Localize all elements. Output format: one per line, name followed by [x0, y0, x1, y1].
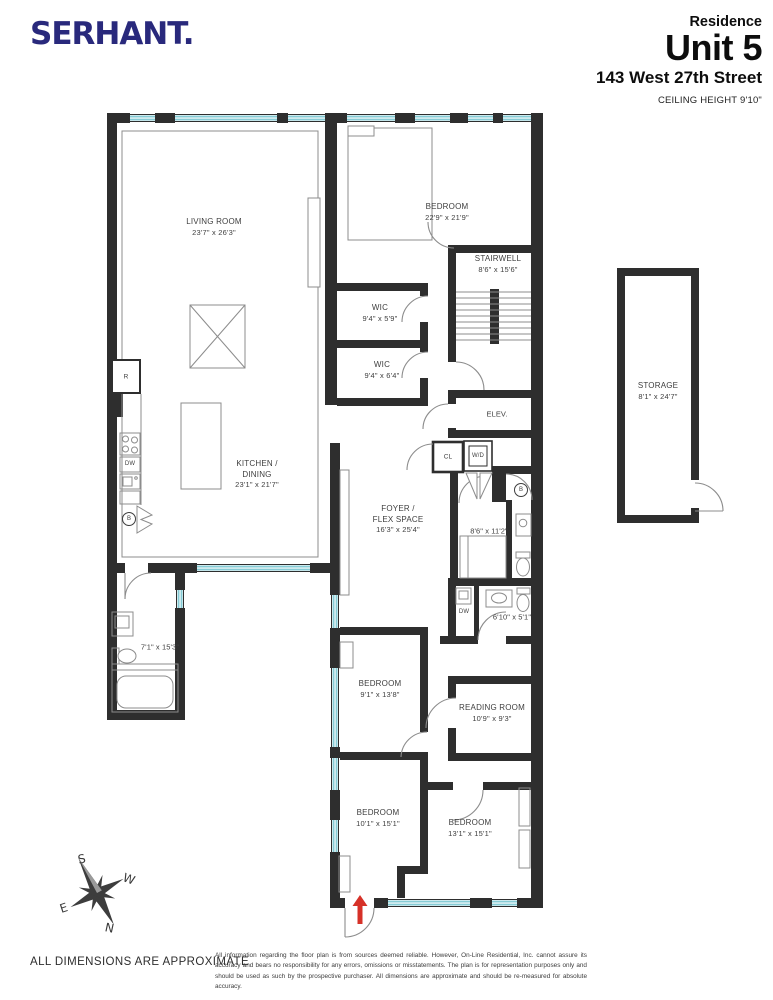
window-frame — [347, 121, 395, 122]
wall — [107, 563, 125, 573]
room-label-bedroom-bottom-right: BEDROOM 13'1" x 15'1" — [448, 818, 492, 838]
compass-icon — [52, 844, 141, 939]
wall — [448, 245, 456, 362]
window-frame — [288, 121, 325, 122]
window-glass — [197, 569, 310, 571]
window-glass — [415, 116, 450, 118]
burner-icon — [135, 477, 138, 480]
fixture-outline — [519, 830, 530, 868]
wall — [691, 268, 699, 480]
window-glass — [492, 904, 517, 906]
wall — [617, 268, 625, 523]
fixture-outline — [460, 536, 506, 578]
burner-icon — [123, 436, 129, 442]
wall — [450, 578, 543, 586]
wall — [448, 676, 456, 698]
wall — [450, 113, 468, 123]
window-glass — [181, 590, 183, 608]
window-glass — [178, 590, 180, 608]
wall — [325, 113, 337, 405]
window-glass — [503, 119, 531, 121]
office-dims-label: 8'6" x 11'2" — [470, 527, 508, 536]
room-label-wic-lower: WIC 9'4" x 6'4" — [365, 360, 400, 380]
window-glass — [347, 116, 395, 118]
fixture-outline — [181, 403, 221, 489]
window-frame — [197, 571, 310, 572]
window-frame — [175, 114, 277, 115]
room-label-elevator: ELEV. — [486, 410, 507, 419]
window-glass — [468, 119, 493, 121]
bath-small-dims-label: 6'10" x 5'1" — [493, 613, 531, 622]
window-glass — [336, 668, 338, 747]
closet-door-zigzag — [137, 506, 152, 533]
window-glass — [130, 119, 155, 121]
washer-dryer-label: W/D — [472, 453, 484, 459]
wall — [448, 753, 543, 761]
window-glass — [288, 119, 325, 121]
window-frame — [468, 121, 493, 122]
wall — [420, 378, 428, 406]
wall — [448, 430, 543, 438]
wall — [517, 898, 543, 908]
window-frame — [503, 121, 531, 122]
wall — [175, 573, 185, 590]
burner-icon — [123, 446, 129, 452]
door-swing — [426, 698, 456, 728]
door-swing — [402, 352, 428, 378]
window-glass — [288, 116, 325, 118]
window-frame — [130, 121, 155, 122]
floorplan-drawing — [0, 0, 773, 1000]
wall — [337, 283, 428, 291]
bath-circle-ensuite-label: B — [519, 487, 523, 493]
window-glass — [347, 119, 395, 121]
window-frame — [183, 590, 184, 608]
wall — [450, 473, 458, 586]
disclaimer-text: All information regarding the floor plan… — [215, 951, 587, 993]
dishwasher-label: DW — [125, 461, 135, 467]
door-swing — [456, 362, 484, 390]
floorplan-page: SERHANT. Residence Unit 5 143 West 27th … — [0, 0, 773, 1000]
fixture-outline — [340, 642, 353, 668]
fridge-label: R — [124, 374, 129, 381]
window-glass — [175, 116, 277, 118]
burner-icon — [519, 519, 527, 527]
wall — [448, 578, 456, 644]
fixture-outline — [120, 491, 140, 504]
entry-arrow-icon — [353, 895, 368, 924]
window-glass — [333, 595, 335, 628]
room-label-foyer: FOYER / FLEX SPACE 16'3" x 25'4" — [373, 504, 424, 535]
fixture-outline — [456, 588, 471, 604]
wall — [448, 245, 543, 253]
wall — [448, 728, 456, 753]
window-frame — [331, 758, 332, 790]
fixture-outline — [123, 477, 132, 486]
fixture-outline — [115, 616, 129, 628]
window-glass — [415, 119, 450, 121]
burner-icon — [132, 447, 138, 453]
wall — [336, 752, 428, 760]
wall — [506, 466, 531, 474]
window-frame — [331, 668, 332, 747]
window-glass — [388, 901, 470, 903]
wall — [175, 608, 185, 710]
window-glass — [468, 116, 493, 118]
window-glass — [333, 758, 335, 790]
window-glass — [492, 901, 517, 903]
bifold-door — [466, 473, 477, 499]
window-glass — [130, 116, 155, 118]
window-frame — [503, 114, 531, 115]
window-frame — [331, 820, 332, 852]
wall — [397, 874, 405, 898]
window-glass — [336, 595, 338, 628]
window-frame — [331, 595, 332, 628]
wall — [420, 627, 428, 732]
window-glass — [175, 119, 277, 121]
window-glass — [333, 668, 335, 747]
window-frame — [492, 899, 517, 900]
burner-icon — [132, 437, 138, 443]
wall — [492, 466, 506, 502]
wall — [506, 500, 512, 586]
room-label-bedroom-mid: BEDROOM 9'1" x 13'8" — [359, 679, 402, 699]
fixture-outline — [516, 514, 531, 536]
window-glass — [336, 820, 338, 852]
wall — [493, 113, 503, 123]
window-frame — [388, 899, 470, 900]
door-swing — [453, 790, 483, 820]
window-glass — [503, 116, 531, 118]
fixture-outline — [519, 788, 530, 826]
fixture-outline — [517, 588, 530, 594]
window-frame — [415, 121, 450, 122]
toilet-icon — [517, 595, 529, 612]
fixture-outline — [459, 591, 468, 599]
window-frame — [338, 668, 339, 747]
fixture-outline — [340, 470, 349, 595]
window-frame — [288, 114, 325, 115]
door-swing — [695, 483, 723, 511]
wall — [277, 113, 288, 123]
wall — [420, 760, 428, 868]
window-frame — [492, 906, 517, 907]
wall — [531, 113, 543, 908]
window-frame — [388, 906, 470, 907]
wall — [617, 268, 699, 276]
window-frame — [415, 114, 450, 115]
wall — [427, 782, 453, 790]
fixture-outline — [348, 128, 432, 240]
wall — [337, 340, 428, 348]
wall — [448, 390, 543, 398]
room-label-bedroom-top: BEDROOM 22'9" x 21'9" — [425, 202, 469, 222]
toilet-icon — [118, 649, 136, 663]
wall — [420, 283, 428, 296]
wall — [107, 113, 117, 573]
fixture-outline — [122, 131, 318, 557]
wall — [330, 898, 345, 908]
room-label-closet: CL — [444, 454, 453, 461]
window-frame — [197, 564, 310, 565]
window-glass — [388, 904, 470, 906]
room-label-living-room: LIVING ROOM 23'7" x 26'3" — [186, 217, 242, 237]
bath-circle-kitchen-label: B — [127, 516, 131, 522]
wall — [155, 113, 175, 123]
window-glass — [336, 758, 338, 790]
fixture-outline — [112, 664, 178, 712]
window-frame — [130, 114, 155, 115]
wall — [440, 636, 478, 644]
wall — [448, 676, 543, 684]
fixture-outline — [516, 552, 530, 558]
door-swing — [125, 573, 151, 599]
wall — [474, 586, 479, 636]
window-glass — [333, 820, 335, 852]
window-frame — [338, 820, 339, 852]
window-frame — [338, 758, 339, 790]
room-label-kitchen: KITCHEN / DINING 23'1" x 21'7" — [235, 459, 279, 490]
wall — [395, 113, 415, 123]
fixture-outline — [339, 856, 350, 892]
window-frame — [176, 590, 177, 608]
bath-left-dims-label: 7'1" x 15'3" — [141, 643, 179, 652]
door-swing — [407, 444, 433, 470]
wall — [310, 563, 340, 573]
door-swing — [423, 404, 448, 429]
door-swing — [402, 296, 428, 322]
pilaster — [308, 198, 320, 287]
wall — [420, 322, 428, 352]
wall — [107, 393, 123, 417]
bathtub-inner — [117, 676, 173, 708]
room-label-wic-upper: WIC 9'4" x 5'9" — [363, 303, 398, 323]
window-frame — [338, 595, 339, 628]
wall — [330, 443, 340, 573]
room-label-bedroom-bottom-left: BEDROOM 10'1" x 15'1" — [356, 808, 400, 828]
wall — [617, 515, 699, 523]
wall — [397, 866, 428, 874]
room-label-storage: STORAGE 8'1" x 24'7" — [638, 381, 678, 401]
wall — [337, 398, 428, 406]
wall — [336, 627, 428, 635]
bifold-door — [480, 473, 492, 499]
room-label-reading-room: READING ROOM 10'9" x 9'3" — [459, 703, 525, 723]
toilet-icon — [517, 558, 530, 576]
wall — [374, 898, 388, 908]
dishwasher2-label: DW — [459, 609, 469, 615]
wall — [470, 898, 492, 908]
room-label-stairwell: STAIRWELL 8'6" x 15'6" — [475, 254, 521, 274]
window-frame — [468, 114, 493, 115]
window-frame — [347, 114, 395, 115]
wall — [148, 563, 197, 573]
window-glass — [197, 566, 310, 568]
toilet-icon — [492, 593, 507, 603]
wall — [691, 508, 699, 523]
window-frame — [175, 121, 277, 122]
wall — [448, 390, 456, 404]
pilaster — [348, 126, 374, 136]
